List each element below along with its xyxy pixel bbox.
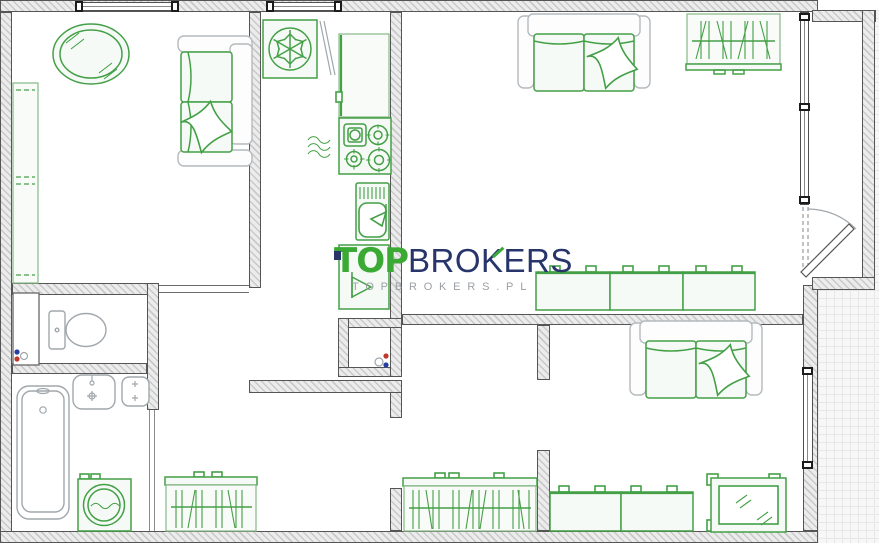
toilet (49, 311, 106, 349)
logo-text-ers: ERS (504, 242, 573, 279)
niche-sink (122, 377, 149, 406)
window-handle (334, 1, 342, 12)
cabinet-row-bedroom (550, 486, 693, 531)
tall-wardrobe (13, 83, 38, 283)
oval-table (53, 24, 129, 84)
wall-left-room-kitchen (249, 12, 261, 288)
logo-navy-accent (334, 251, 341, 260)
cabinet-door-leaf (320, 21, 335, 75)
kitchen-counter (336, 34, 389, 117)
logo-text-bro: BRO (408, 242, 481, 279)
window-handle (802, 461, 813, 469)
wall-living-bottom (402, 314, 803, 325)
kitchen-sink (356, 183, 389, 240)
hanger-wardrobe-living (686, 14, 781, 74)
sofa-living (518, 14, 650, 95)
window-left-room (76, 2, 178, 11)
window-kitchen (267, 2, 341, 11)
wall-midroom-top (249, 380, 402, 393)
window-handle (799, 103, 810, 111)
balcony-door (801, 207, 856, 277)
window-handle (799, 13, 810, 21)
washbasin (73, 375, 115, 409)
loggia-wall-right (862, 10, 875, 290)
hanger-wardrobe-hall-right (403, 473, 537, 531)
shaft-wall-right (390, 327, 402, 377)
sofa-bedroom (630, 321, 762, 402)
wc-riser-shaft (13, 293, 39, 365)
window-living-right (800, 12, 809, 205)
wall-bedroom-stub-bottom (537, 450, 550, 531)
watermark-logo: TOPBROKERS TOPBROKERS.PL (334, 244, 573, 293)
wall-hall-top-left (12, 283, 159, 295)
hall-riser-dots (375, 353, 389, 367)
stove (339, 118, 392, 174)
window-handle (266, 1, 274, 12)
window-handle (799, 196, 810, 204)
steam-waves-icon (308, 137, 330, 158)
sofa-left-room (176, 36, 252, 166)
logo-tagline: TOPBROKERS.PL (334, 281, 573, 293)
wall-wc-right (147, 283, 159, 410)
logo-text-brokers: BROKERS (408, 244, 573, 277)
wall-wc-bottom (12, 363, 147, 374)
wall-bedroom-stub-top (537, 325, 550, 380)
logo-text-top: TOP (334, 244, 408, 278)
wall-bottom (0, 531, 818, 543)
bathtub (17, 386, 69, 519)
floor-plan: TOPBROKERS TOPBROKERS.PL (0, 0, 879, 543)
washing-machine (78, 474, 131, 531)
window-handle (802, 367, 813, 375)
logo-letter-k: K (481, 244, 504, 277)
hanger-wardrobe-hall-left (165, 472, 257, 531)
window-handle (171, 1, 179, 12)
window-handle (75, 1, 83, 12)
fridge (263, 20, 317, 78)
loggia-wall-bottom (812, 277, 875, 290)
balcony-tiles (818, 290, 879, 543)
window-bedroom-right (803, 368, 813, 468)
wall-left (0, 12, 12, 543)
mirror-frame (707, 474, 786, 532)
wall-thin-left-room (159, 285, 249, 293)
snowflake-icon (271, 30, 310, 68)
wall-thin-bath-right (149, 410, 155, 531)
wall-midroom-stub-bottom (390, 488, 402, 531)
